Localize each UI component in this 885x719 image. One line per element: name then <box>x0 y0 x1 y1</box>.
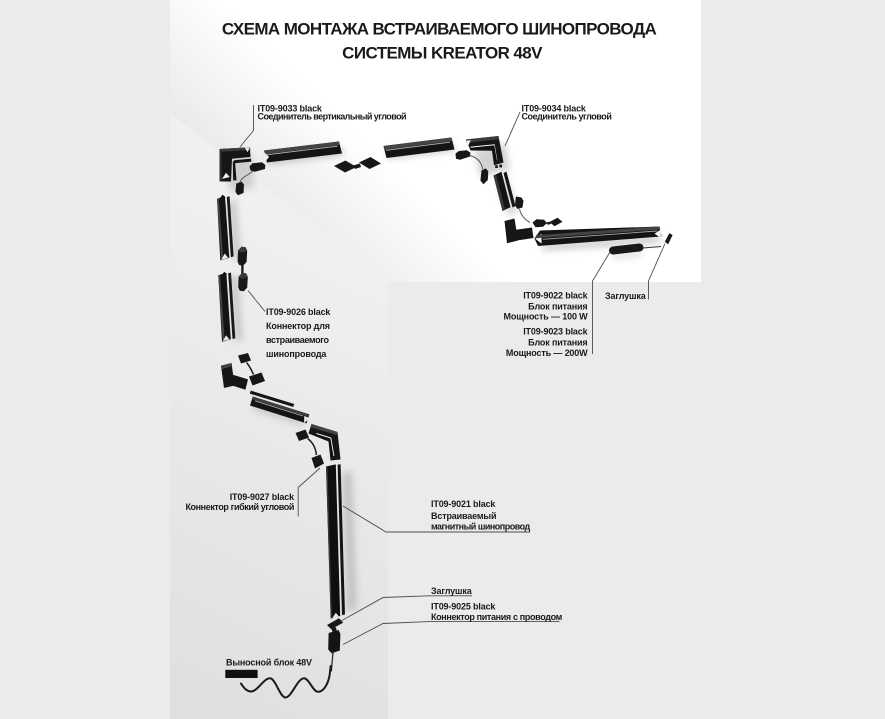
svg-text:Заглушка: Заглушка <box>605 291 647 301</box>
svg-text:IT09-9027 black: IT09-9027 black <box>230 492 295 502</box>
svg-text:Заглушка: Заглушка <box>431 586 473 596</box>
svg-text:Коннектор для: Коннектор для <box>266 321 330 331</box>
svg-text:Блок питания: Блок питания <box>528 338 587 348</box>
svg-text:IT09-9023 black: IT09-9023 black <box>523 327 588 337</box>
svg-text:Выносной блок 48V: Выносной блок 48V <box>226 658 312 668</box>
svg-text:Блок питания: Блок питания <box>528 302 587 312</box>
svg-text:СХЕМА МОНТАЖА ВСТРАИВАЕМОГО ШИ: СХЕМА МОНТАЖА ВСТРАИВАЕМОГО ШИНОПРОВОДА <box>222 20 657 39</box>
svg-text:Встраиваемый: Встраиваемый <box>431 511 496 521</box>
svg-text:IT09-9026 black: IT09-9026 black <box>266 307 331 317</box>
svg-text:Мощность — 100 W: Мощность — 100 W <box>504 312 589 322</box>
svg-text:IT09-9021 black: IT09-9021 black <box>431 499 496 509</box>
svg-text:СИСТЕМЫ KREATOR 48V: СИСТЕМЫ KREATOR 48V <box>342 44 543 63</box>
svg-text:магнитный шинопровод: магнитный шинопровод <box>431 522 531 532</box>
svg-text:шинопровода: шинопровода <box>266 349 327 359</box>
svg-text:Мощность — 200W: Мощность — 200W <box>506 348 588 358</box>
svg-text:IT09-9025 black: IT09-9025 black <box>431 602 496 612</box>
svg-text:встраиваемого: встраиваемого <box>266 335 330 345</box>
svg-text:Коннектор гибкий угловой: Коннектор гибкий угловой <box>185 502 294 512</box>
svg-text:Соединитель вертикальный углов: Соединитель вертикальный угловой <box>258 112 407 122</box>
svg-text:Соединитель угловой: Соединитель угловой <box>522 112 612 122</box>
svg-text:Коннектор питания с проводом: Коннектор питания с проводом <box>431 612 563 622</box>
svg-text:IT09-9022 black: IT09-9022 black <box>523 291 588 301</box>
